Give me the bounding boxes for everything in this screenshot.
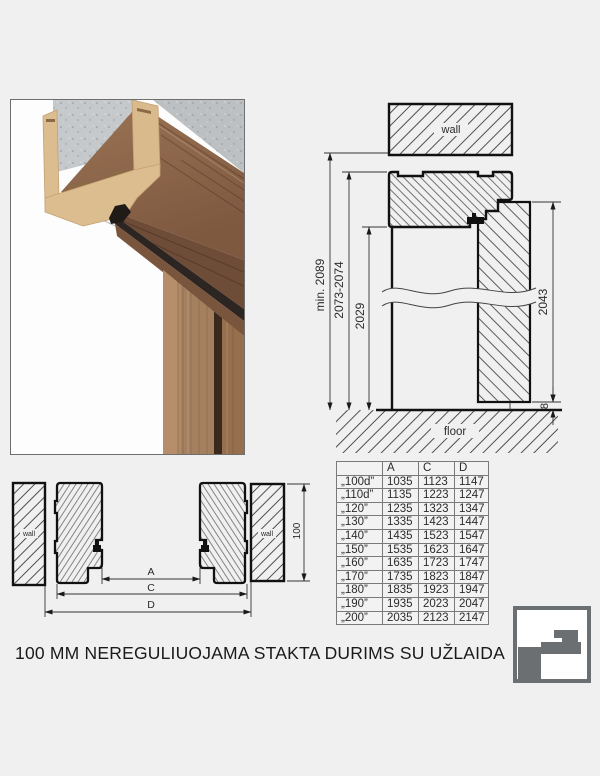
horizontal-section-diagram: wall wall [0, 468, 335, 630]
size-label-cell: „140” [337, 529, 383, 543]
brand-logo [513, 606, 591, 683]
value-cell: 1447 [455, 516, 489, 530]
dim-opening-height: 2029 [353, 302, 367, 329]
value-cell: 1635 [383, 557, 419, 571]
vertical-section-diagram: wall floor [300, 95, 600, 460]
value-cell: 2123 [419, 611, 455, 625]
table-row: „150”153516231647 [337, 543, 489, 557]
door-frame-photo [10, 99, 245, 455]
table-row: „200”203521232147 [337, 611, 489, 625]
table-row: „110d”113512231247 [337, 489, 489, 503]
value-cell: 1423 [419, 516, 455, 530]
product-caption: 100 MM NEREGULIUOJAMA STAKTA DURIMS SU U… [10, 643, 510, 664]
value-cell: 1923 [419, 584, 455, 598]
value-cell: 1747 [455, 557, 489, 571]
value-cell: 1647 [455, 543, 489, 557]
size-label-cell: „160” [337, 557, 383, 571]
table-row: „160”163517231747 [337, 557, 489, 571]
dim-clear-width-label: A [147, 566, 154, 578]
dim-frame-depth-label: 100 [292, 522, 303, 539]
value-cell: 2047 [455, 597, 489, 611]
value-cell: 1735 [383, 570, 419, 584]
size-label-cell: „180” [337, 584, 383, 598]
value-cell: 1535 [383, 543, 419, 557]
value-cell: 1135 [383, 489, 419, 503]
table-row: „100d”103511231147 [337, 475, 489, 489]
dim-wall-opening-label: D [147, 599, 155, 611]
value-cell: 1835 [383, 584, 419, 598]
wall-block-right: wall [251, 484, 284, 581]
table-row: „120”123513231347 [337, 502, 489, 516]
frame-profile-left [55, 483, 102, 583]
value-cell: 2023 [419, 597, 455, 611]
header-c-cell: C [419, 462, 455, 476]
dim-door-leaf-height: 2043 [536, 288, 550, 315]
size-label-cell: „200” [337, 611, 383, 625]
table-body: „100d”103511231147„110d”113512231247„120… [337, 475, 489, 625]
wall-label-right: wall [260, 531, 274, 538]
header-d-cell: D [455, 462, 489, 476]
wall-block-left: wall [13, 483, 45, 585]
floor: floor [336, 410, 562, 453]
dim-floor-gap: 8 [539, 403, 551, 409]
value-cell: 1235 [383, 502, 419, 516]
size-label-cell: „190” [337, 597, 383, 611]
logo-notch [554, 638, 562, 642]
value-cell: 1947 [455, 584, 489, 598]
dim-frame-outer-height: 2073-2074 [332, 261, 346, 319]
value-cell: 1623 [419, 543, 455, 557]
wall-label: wall [441, 124, 461, 136]
dim-min-total-height: min. 2089 [313, 258, 327, 311]
size-label-cell: „100d” [337, 475, 383, 489]
frame-profile-right [200, 483, 247, 583]
size-label-cell: „170” [337, 570, 383, 584]
size-label-cell: „130” [337, 516, 383, 530]
value-cell: 1823 [419, 570, 455, 584]
value-cell: 1847 [455, 570, 489, 584]
value-cell: 1147 [455, 475, 489, 489]
value-cell: 1435 [383, 529, 419, 543]
wall-label-left: wall [22, 531, 36, 538]
value-cell: 1247 [455, 489, 489, 503]
value-cell: 1523 [419, 529, 455, 543]
value-cell: 2035 [383, 611, 419, 625]
page: wall floor [0, 0, 600, 776]
size-label-cell: „120” [337, 502, 383, 516]
value-cell: 1323 [419, 502, 455, 516]
table-row: „140”143515231547 [337, 529, 489, 543]
logo-block-shape [518, 647, 541, 679]
dim-frame-outer-label: C [147, 582, 155, 594]
value-cell: 1347 [455, 502, 489, 516]
floor-label: floor [444, 426, 467, 438]
table-row: „170”173518231847 [337, 570, 489, 584]
size-label-cell: „150” [337, 543, 383, 557]
value-cell: 1335 [383, 516, 419, 530]
table-header-row: A C D [337, 462, 489, 476]
value-cell: 2147 [455, 611, 489, 625]
value-cell: 1035 [383, 475, 419, 489]
header-size-cell [337, 462, 383, 476]
table-row: „180”183519231947 [337, 584, 489, 598]
table-row: „190”193520232047 [337, 597, 489, 611]
value-cell: 1547 [455, 529, 489, 543]
header-a-cell: A [383, 462, 419, 476]
value-cell: 1935 [383, 597, 419, 611]
size-label-cell: „110d” [337, 489, 383, 503]
value-cell: 1723 [419, 557, 455, 571]
brand-logo-mark [517, 610, 587, 679]
value-cell: 1223 [419, 489, 455, 503]
dimensions-table: A C D „100d”103511231147„110d”1135122312… [336, 461, 489, 625]
value-cell: 1123 [419, 475, 455, 489]
wall-block: wall [389, 104, 512, 155]
table-row: „130”133514231447 [337, 516, 489, 530]
door-frame-photo-render [11, 100, 244, 454]
